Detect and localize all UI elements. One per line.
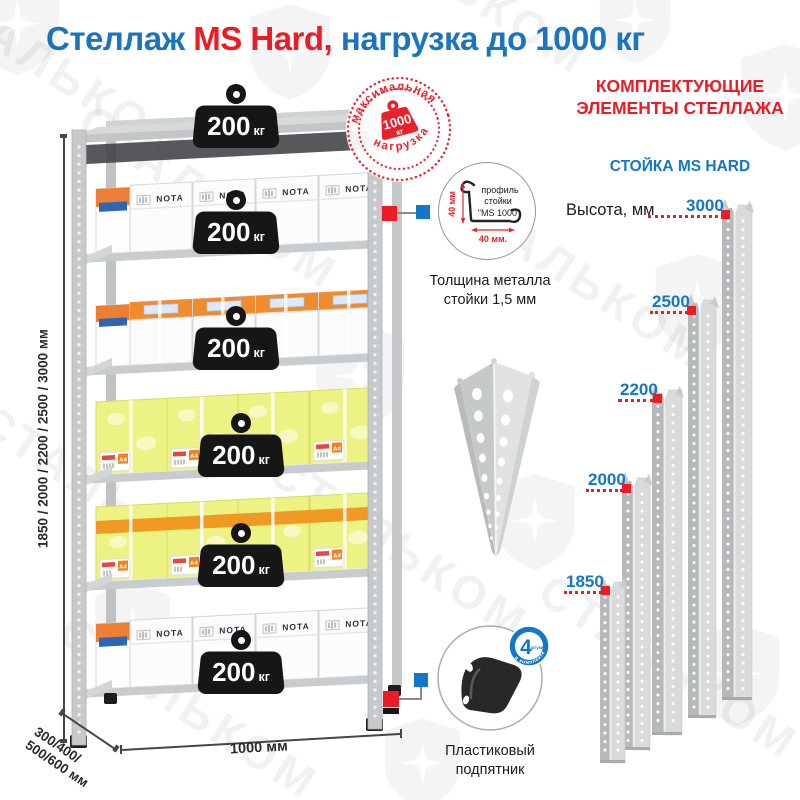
weight-badge: 200кг [192,306,280,370]
callout-marker-red [383,691,399,707]
weight-badge: 200кг [197,413,285,477]
pack-size-text: A4 [119,564,127,570]
corner-post-image [444,348,548,566]
dimension-tick [400,729,402,738]
height-marker [721,210,730,219]
components-header-line1: КОМПЛЕКТУЮЩИЕ [548,76,800,98]
height-leader-line [586,489,623,492]
height-leader-line [650,311,688,314]
weight-value: 200 [207,328,250,368]
badge-unit: штуки [531,645,544,650]
weight-badge: 200кг [192,190,280,254]
weight-unit: кг [258,670,269,684]
title-part-3: нагрузка до 1000 кг [332,20,644,57]
callout-line [396,212,418,214]
weight-unit: кг [253,124,264,138]
infographic-canvas: СТАЛЬКОМ СТАЛЬКОМ СТАЛЬКОМ СТАЛЬКОМ СТАЛ… [0,0,800,800]
weight-unit: кг [253,230,264,244]
title-part-1: Стеллаж [46,20,193,57]
height-leader-line [618,399,654,402]
upright-post-1850 [598,576,628,763]
components-header: КОМПЛЕКТУЮЩИЕ ЭЛЕМЕНТЫ СТЕЛЛАЖА [548,76,800,120]
dimension-tick [120,745,122,754]
weight-badge: 200кг [197,523,285,587]
height-marker [653,394,662,403]
height-marker [687,306,696,315]
weight-unit: кг [253,346,264,360]
profile-drawing: 40 мм 40 мм. профиль стойки "MS 1000" [439,163,535,259]
pack-size-text: A4 [333,446,341,452]
title-part-2: MS Hard, [193,20,332,57]
height-marker [601,586,610,595]
pack-size-text: A4 [119,457,127,463]
weight-value: 200 [207,212,250,252]
components-header-line2: ЭЛЕМЕНТЫ СТЕЛЛАЖА [548,98,800,120]
dimension-tick [60,134,67,138]
foot-quantity-badge: 4 штуки в комплекте [509,626,549,666]
box-brand-text: NOTA [156,192,183,203]
plastic-foot-circle: 4 штуки в комплекте [432,620,552,738]
height-label: 1850 [566,572,604,592]
profile-dim-vertical: 40 мм [447,191,457,217]
profile-caption-1: профиль [481,185,519,195]
callout-marker-blue [416,205,430,219]
height-leader-line [564,591,602,594]
profile-dim-horizontal: 40 мм. [479,234,507,244]
callout-marker-blue [414,673,428,687]
callout-line [398,698,422,700]
post-type-subheader: СТОЙКА MS HARD [548,158,800,176]
weight-unit: кг [258,453,269,467]
height-marker [622,484,631,493]
profile-caption-2: стойки [484,196,512,206]
back-right-post [392,107,402,687]
height-leader-line [648,215,718,218]
callout-line [420,687,422,700]
weight-knob [226,84,246,104]
height-label: 3000 [686,196,724,216]
height-dimension-line [63,137,65,740]
callout-marker-red [382,206,397,221]
page-title: Стеллаж MS Hard, нагрузка до 1000 кг [46,20,645,58]
box-brand-text: NOTA [282,186,309,197]
pack-size-text: A4 [333,553,341,559]
upright-post-2200 [650,384,684,735]
width-dimension-label: 1000 мм [230,738,289,757]
profile-detail-circle: 40 мм 40 мм. профиль стойки "MS 1000" [438,162,536,260]
weight-value: 200 [212,545,255,585]
profile-caption-3: "MS 1000" [478,208,520,218]
plastic-foot-label: Пластиковый подпятник [420,742,560,780]
weight-value: 200 [212,435,255,475]
weight-value: 200 [207,106,250,146]
box-brand-text: NOTA [156,627,183,638]
height-label: 2500 [652,292,690,312]
plastic-foot [104,693,117,704]
weight-value: 200 [212,652,255,692]
front-left-post [72,130,86,745]
thickness-note: Толщина металла стойки 1,5 мм [424,272,556,310]
upright-post-2500 [686,294,719,718]
weight-badge: 200кг [197,630,285,694]
weight-badge: 200кг [192,84,280,148]
height-dimension-label: 1850 / 2000 / 2200 / 2500 / 3000 мм [34,137,52,740]
upright-post-3000 [720,199,754,700]
weight-unit: кг [258,563,269,577]
shelf-foot-under-marker [383,708,399,714]
box-brand-text: NOTA [282,621,309,632]
height-label: 2000 [588,470,626,490]
